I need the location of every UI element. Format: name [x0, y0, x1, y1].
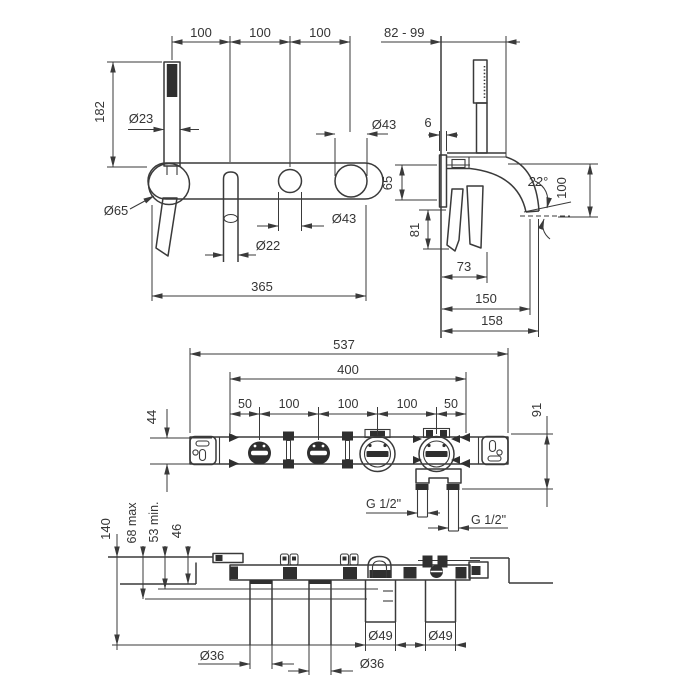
dim-seg-1: 50 — [238, 397, 252, 411]
dim-front-spacing-3: 100 — [309, 25, 331, 40]
dim-thread-left: G 1/2" — [366, 497, 401, 511]
dim-front-spacing-2: 100 — [249, 25, 271, 40]
dim-rough-mount-width: 400 — [337, 362, 359, 377]
handshower-grip-front — [156, 198, 177, 256]
dim-total-depth: 140 — [98, 518, 113, 540]
bath-mixer-installation-drawing: 100 100 100 182 Ø23 Ø43 Ø65 Ø43 Ø2 — [0, 0, 700, 700]
dim-rough-body-height: 44 — [144, 410, 159, 424]
dim-front-total-width: 365 — [251, 279, 273, 294]
dim-handle-reach: 73 — [457, 259, 471, 274]
dim-handle-drop: 81 — [407, 223, 422, 237]
pipe-clamp-1 — [283, 432, 294, 469]
dim-plate-depth: 46 — [169, 524, 184, 538]
spout-elbow-plan — [368, 557, 391, 579]
lever-handles-side — [447, 186, 483, 251]
rough-in-view: 537 400 50 100 100 100 50 44 — [144, 337, 553, 531]
cartridge-large-1 — [360, 430, 395, 472]
cartridge-sleeve-2 — [426, 580, 456, 622]
handshower-front — [156, 62, 180, 256]
pipe-clamp-2 — [342, 432, 353, 469]
dim-rough-total-width: 537 — [333, 337, 355, 352]
dim-seg-5: 50 — [444, 397, 458, 411]
cartridge-small-2 — [307, 442, 330, 465]
dim-body-height: 65 — [380, 176, 395, 190]
recessed-parts-plan — [112, 580, 457, 645]
dim-spout-angle: 22° — [527, 174, 548, 189]
dim-total-reach: 158 — [481, 313, 503, 328]
outlet-manifold — [416, 469, 462, 531]
diverter-knob-front — [279, 170, 302, 193]
rough-in-plan-body — [230, 554, 480, 580]
handshower-side — [474, 60, 488, 153]
mixer-knob-front — [335, 165, 367, 197]
dim-tube-dia-1: Ø36 — [200, 648, 225, 663]
technical-drawing-page: 100 100 100 182 Ø23 Ø43 Ø65 Ø43 Ø2 — [0, 0, 700, 700]
dim-rough-depth: 91 — [529, 403, 544, 417]
mixer-body-side — [440, 153, 507, 207]
dim-front-spacing-1: 100 — [190, 25, 212, 40]
dim-depth-range: 82 - 99 — [384, 25, 424, 40]
dim-holder-dia: Ø65 — [104, 203, 129, 218]
dim-seg-3: 100 — [338, 397, 359, 411]
handshower-grip-side — [467, 186, 483, 248]
dim-min-depth: 53 min. — [147, 502, 161, 543]
dim-handshower-height: 182 — [92, 101, 107, 123]
dim-cartridge-dia-2: Ø49 — [428, 628, 453, 643]
cartridge-large-2 — [413, 429, 460, 472]
cartridge-sleeve-1 — [366, 580, 396, 622]
dim-spout-dia: Ø22 — [256, 238, 281, 253]
mixer-bar-front — [148, 163, 383, 205]
dim-cartridge-dia-1: Ø49 — [368, 628, 393, 643]
spout-front — [224, 172, 239, 262]
dim-max-depth: 68 max — [125, 502, 139, 544]
mixer-lever-side — [447, 189, 463, 251]
dim-spout-reach: 150 — [475, 291, 497, 306]
dim-plate-thickness: 6 — [424, 115, 431, 130]
dim-tube-dia-2: Ø36 — [360, 656, 385, 671]
dim-spout-drop: 100 — [554, 177, 569, 199]
side-view: 82 - 99 6 65 81 22° 100 73 150 — [380, 25, 598, 338]
dim-seg-2: 100 — [279, 397, 300, 411]
front-view: 100 100 100 182 Ø23 Ø43 Ø65 Ø43 Ø2 — [92, 25, 396, 301]
dim-handle-dia-top: Ø43 — [372, 117, 397, 132]
dim-handshower-dia: Ø23 — [129, 111, 154, 126]
dim-seg-4: 100 — [397, 397, 418, 411]
cartridge-small-1 — [248, 442, 271, 465]
dim-handle-dia-bottom: Ø43 — [332, 211, 357, 226]
side-view-dimensions: 82 - 99 6 65 81 22° 100 73 150 — [380, 25, 598, 337]
dim-thread-right: G 1/2" — [471, 513, 506, 527]
plan-view-dimensions: 140 68 max 53 min. 46 Ø49 Ø49 — [98, 502, 465, 676]
